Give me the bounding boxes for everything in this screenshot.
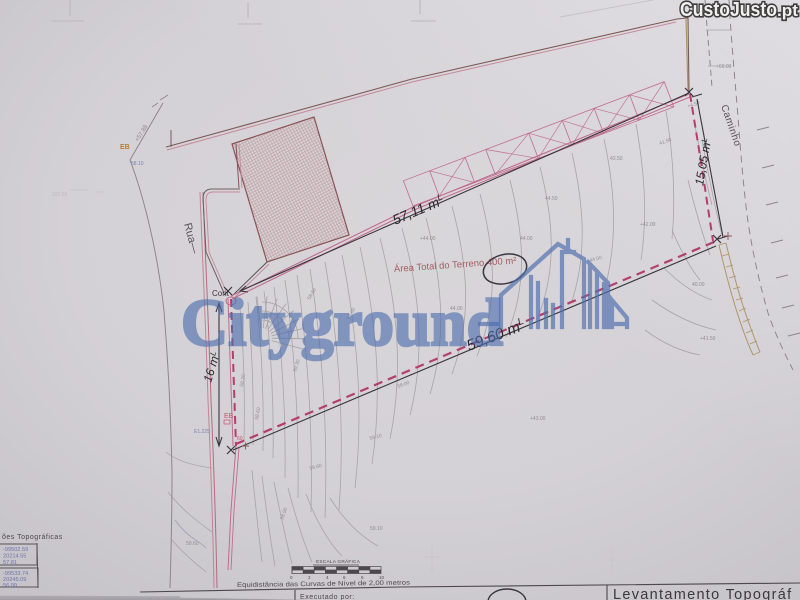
svg-text:+44.00: +44.00 bbox=[420, 236, 436, 242]
svg-text:ESCALA GRÁFICA: ESCALA GRÁFICA bbox=[316, 558, 361, 565]
svg-text:40.00: 40.00 bbox=[692, 282, 705, 288]
svg-text:.pt: .pt bbox=[777, 2, 799, 20]
svg-text:+60.00: +60.00 bbox=[716, 64, 732, 70]
svg-text:Executado por:: Executado por: bbox=[300, 594, 355, 600]
svg-text:EB: EB bbox=[224, 413, 234, 420]
svg-text:+43.00: +43.00 bbox=[530, 416, 546, 422]
svg-text:CustoJusto: CustoJusto bbox=[680, 0, 777, 21]
svg-text:Levantamento Topográf: Levantamento Topográf bbox=[613, 587, 792, 600]
svg-text:-99502.59: -99502.59 bbox=[3, 547, 28, 553]
svg-text:202.50: 202.50 bbox=[52, 192, 68, 198]
svg-text:ões Topográficas: ões Topográficas bbox=[2, 534, 63, 541]
svg-text:E1.225: E1.225 bbox=[194, 429, 210, 435]
svg-text:20214.55: 20214.55 bbox=[3, 554, 26, 560]
svg-text:+42.00: +42.00 bbox=[640, 222, 656, 228]
svg-text:58.10: 58.10 bbox=[131, 161, 144, 167]
svg-text:56.99: 56.99 bbox=[3, 583, 17, 589]
svg-text:EB: EB bbox=[120, 144, 130, 151]
svg-text:43.50: 43.50 bbox=[610, 156, 623, 162]
svg-text:+41.50: +41.50 bbox=[700, 336, 716, 342]
svg-text:44.50: 44.50 bbox=[545, 196, 558, 202]
svg-text:57.81: 57.81 bbox=[3, 560, 17, 566]
svg-text:59.10: 59.10 bbox=[370, 526, 383, 532]
svg-text:60: 60 bbox=[237, 436, 243, 442]
svg-text:59.60: 59.60 bbox=[186, 541, 199, 547]
svg-text:44.00: 44.00 bbox=[520, 236, 533, 242]
svg-text:Cityground: Cityground bbox=[181, 286, 503, 360]
